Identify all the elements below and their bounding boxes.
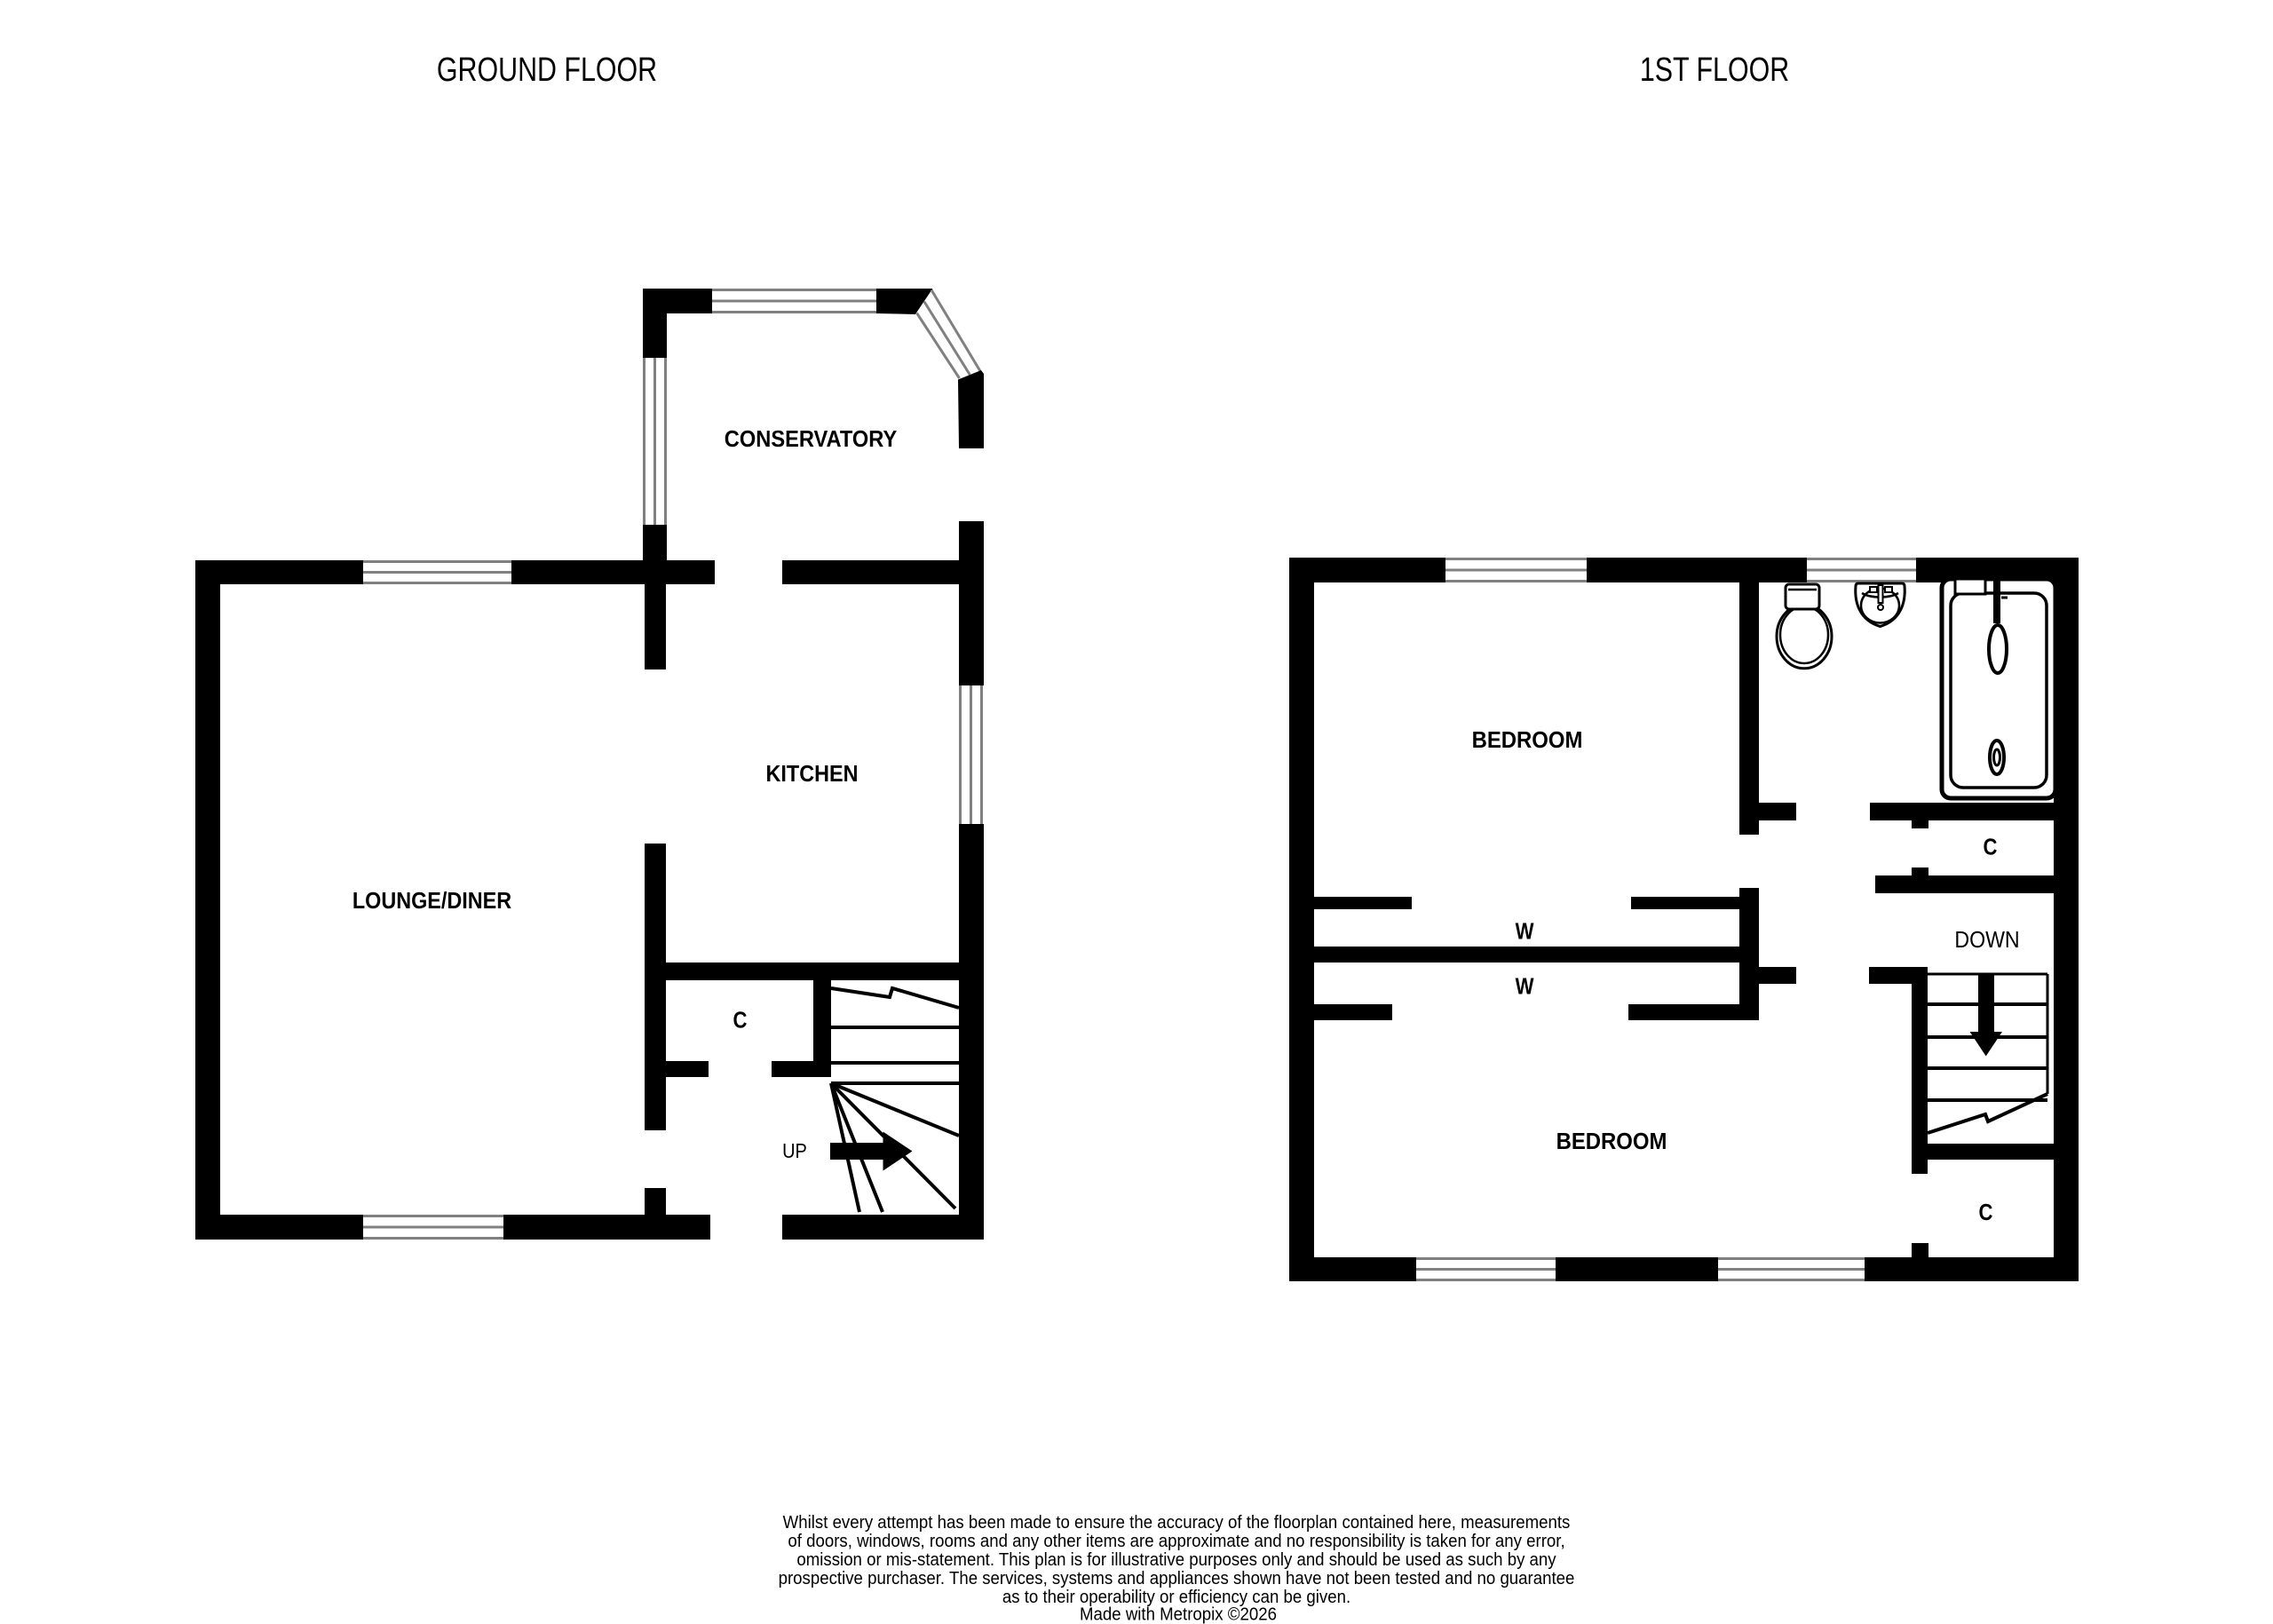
svg-text:C: C [1979, 1200, 1993, 1225]
svg-text:C: C [733, 1008, 748, 1034]
svg-text:BEDROOM: BEDROOM [1472, 727, 1583, 753]
svg-text:prospective purchaser. The ser: prospective purchaser. The services, sys… [779, 1568, 1575, 1588]
svg-text:BEDROOM: BEDROOM [1556, 1129, 1667, 1154]
svg-text:W: W [1516, 974, 1534, 1000]
svg-text:LOUNGE/DINER: LOUNGE/DINER [352, 889, 511, 914]
svg-text:1ST FLOOR: 1ST FLOOR [1640, 51, 1789, 89]
svg-text:DOWN: DOWN [1954, 928, 2019, 954]
svg-text:KITCHEN: KITCHEN [766, 762, 859, 787]
svg-text:omission or mis-statement. Thi: omission or mis-statement. This plan is … [796, 1549, 1556, 1570]
svg-text:Whilst every attempt has been: Whilst every attempt has been made to en… [783, 1512, 1571, 1533]
svg-text:CONSERVATORY: CONSERVATORY [725, 427, 898, 452]
svg-text:C: C [1984, 835, 1998, 860]
svg-text:GROUND FLOOR: GROUND FLOOR [437, 51, 657, 89]
svg-text:UP: UP [782, 1138, 807, 1162]
svg-text:W: W [1516, 919, 1534, 945]
svg-text:Made with Metropix ©2026: Made with Metropix ©2026 [1080, 1604, 1277, 1624]
svg-text:of doors, windows, rooms and a: of doors, windows, rooms and any other i… [788, 1531, 1564, 1551]
